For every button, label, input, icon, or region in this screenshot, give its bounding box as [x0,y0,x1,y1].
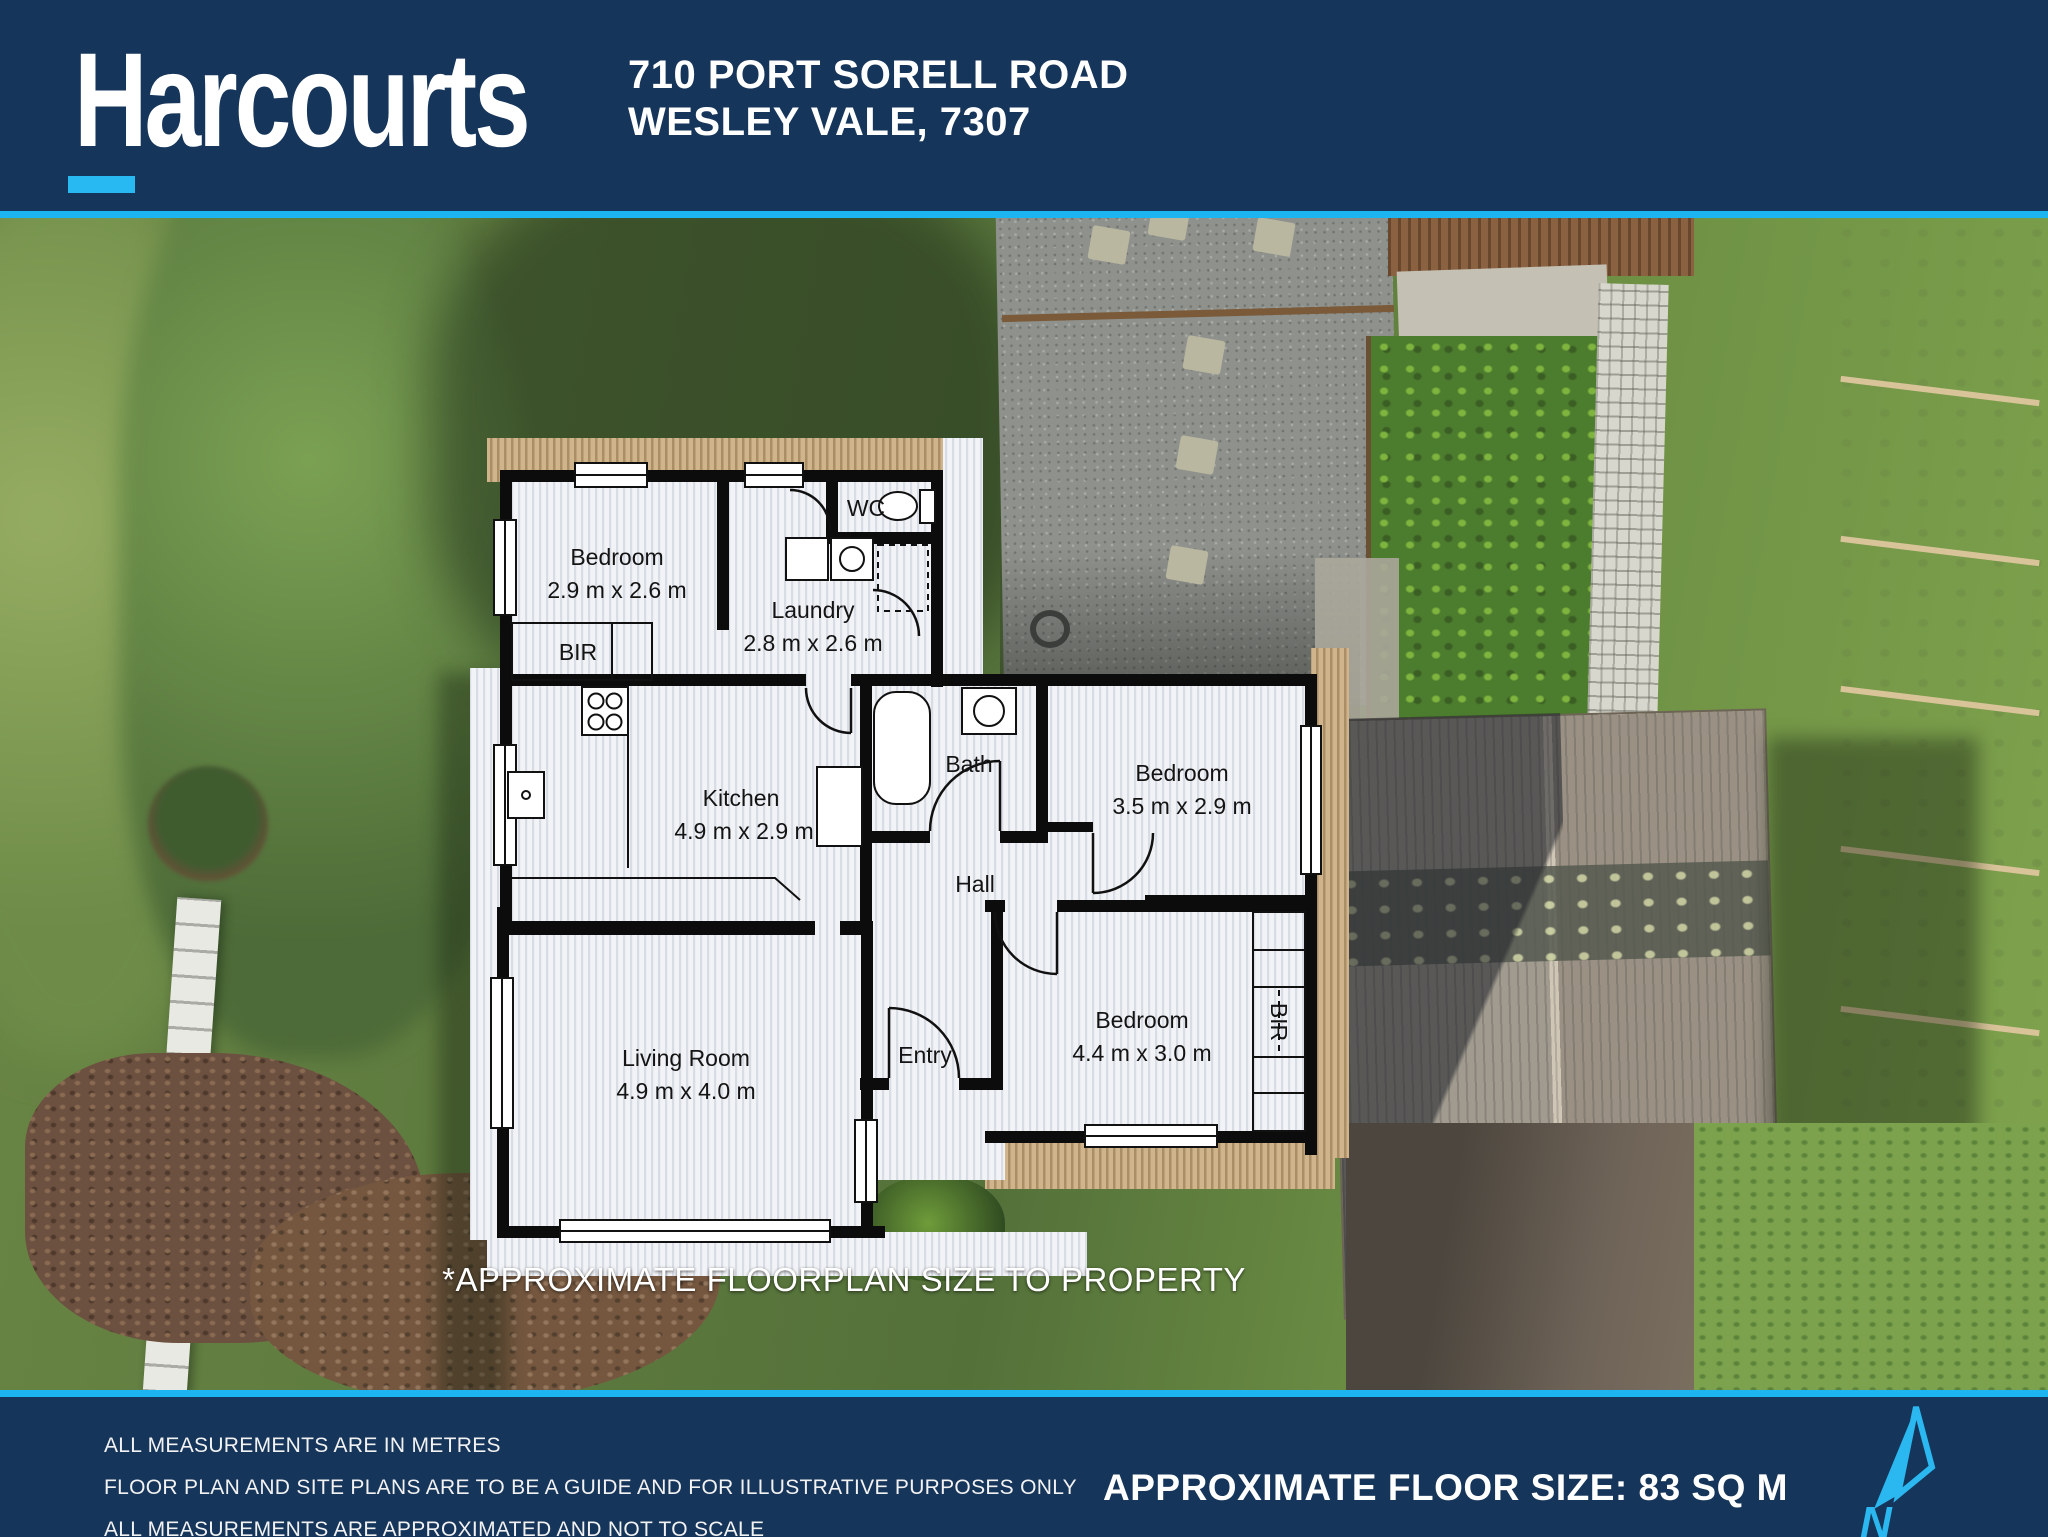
harcourts-logo-tick [68,176,135,193]
property-address: 710 PORT SORELL ROAD WESLEY VALE, 7307 [628,52,1128,146]
room-label-hall: Hall [955,871,995,897]
floorplan-svg: Bedroom 2.9 m x 2.6 m WC Laundry 2.8 m x… [0,218,2048,1390]
disclaimer-line3: ALL MEASUREMENTS ARE APPROXIMATED AND NO… [104,1509,1077,1537]
aerial-photo: *APPROXIMATE FLOORPLAN SIZE TO PROPERTY [0,218,2048,1390]
room-dims-laundry: 2.8 m x 2.6 m [743,630,882,656]
footer-bar: ALL MEASUREMENTS ARE IN METRES FLOOR PLA… [0,1390,2048,1537]
north-arrow-icon: N [1838,1399,1968,1537]
room-label-laundry: Laundry [771,597,855,623]
disclaimer-block: ALL MEASUREMENTS ARE IN METRES FLOOR PLA… [104,1425,1077,1537]
room-dims-bedroom1: 2.9 m x 2.6 m [547,577,686,603]
room-label-bath: Bath [945,751,992,777]
disclaimer-line1: ALL MEASUREMENTS ARE IN METRES [104,1425,1077,1467]
harcourts-logo: Harcourts [74,34,528,168]
room-label-kitchen: Kitchen [703,785,780,811]
room-label-bir1: BIR [559,639,597,665]
room-dims-kitchen: 4.9 m x 2.9 m [674,818,813,844]
room-dims-bedroom3: 4.4 m x 3.0 m [1072,1040,1211,1066]
address-line1: 710 PORT SORELL ROAD [628,52,1128,99]
room-label-bedroom2: Bedroom [1135,760,1228,786]
room-label-entry: Entry [898,1042,952,1068]
room-label-wc: WC [847,495,885,521]
approx-floor-size: APPROXIMATE FLOOR SIZE: 83 SQ M [1103,1467,1788,1509]
address-line2: WESLEY VALE, 7307 [628,99,1128,146]
room-dims-living: 4.9 m x 4.0 m [616,1078,755,1104]
room-label-bir2: BIR [1266,1003,1292,1041]
room-label-living: Living Room [622,1045,750,1071]
header-bar: Harcourts 710 PORT SORELL ROAD WESLEY VA… [0,0,2048,218]
north-label: N [1860,1498,1893,1537]
room-label-bedroom3: Bedroom [1095,1007,1188,1033]
flyer-page: Harcourts 710 PORT SORELL ROAD WESLEY VA… [0,0,2048,1537]
disclaimer-line2: FLOOR PLAN AND SITE PLANS ARE TO BE A GU… [104,1467,1077,1509]
room-dims-bedroom2: 3.5 m x 2.9 m [1112,793,1251,819]
floorplan-caption: *APPROXIMATE FLOORPLAN SIZE TO PROPERTY [424,1261,1264,1299]
room-label-bedroom1: Bedroom [570,544,663,570]
